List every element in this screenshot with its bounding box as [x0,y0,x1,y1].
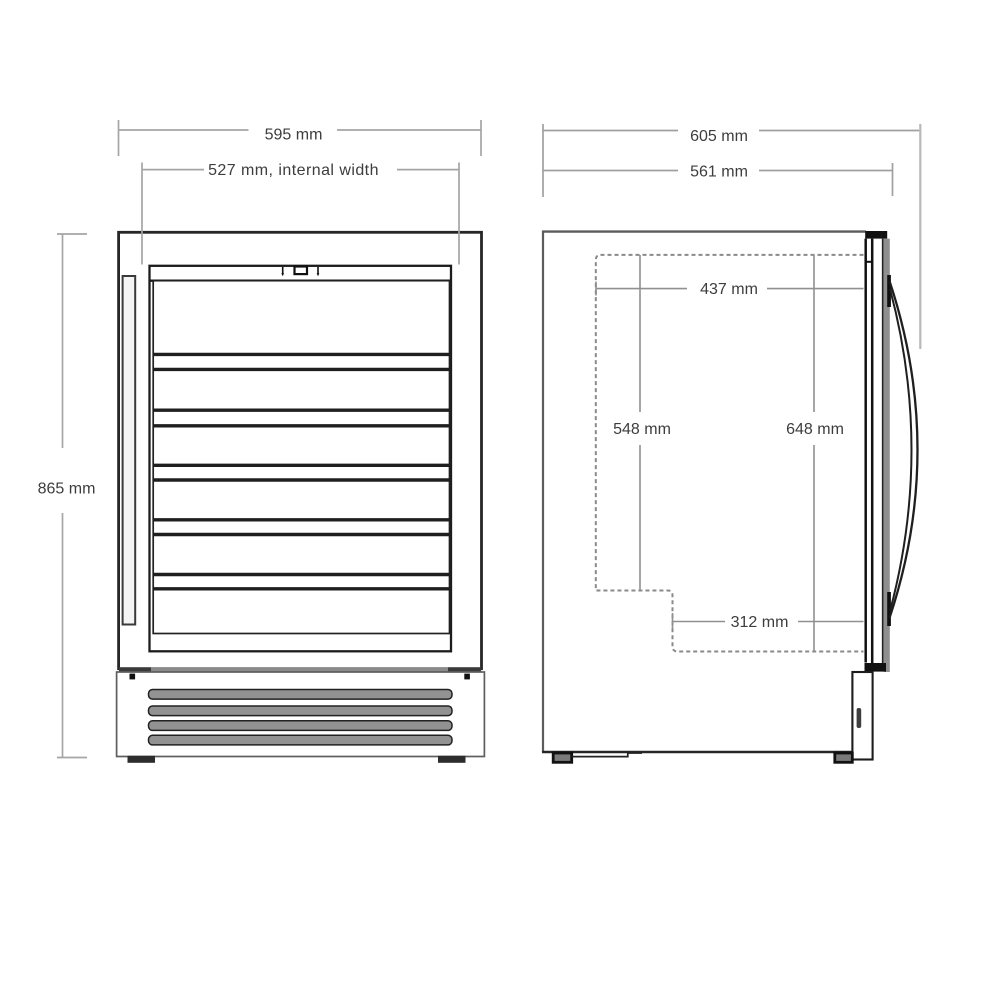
svg-text:548 mm: 548 mm [613,421,671,438]
svg-text:561 mm: 561 mm [690,163,748,180]
svg-text:605 mm: 605 mm [690,128,748,145]
svg-text:527 mm, internal width: 527 mm, internal width [208,162,379,179]
svg-text:865 mm: 865 mm [38,481,96,498]
svg-text:595 mm: 595 mm [265,127,323,144]
svg-text:648 mm: 648 mm [786,421,844,438]
svg-text:312 mm: 312 mm [731,614,789,631]
svg-text:437 mm: 437 mm [700,281,758,298]
